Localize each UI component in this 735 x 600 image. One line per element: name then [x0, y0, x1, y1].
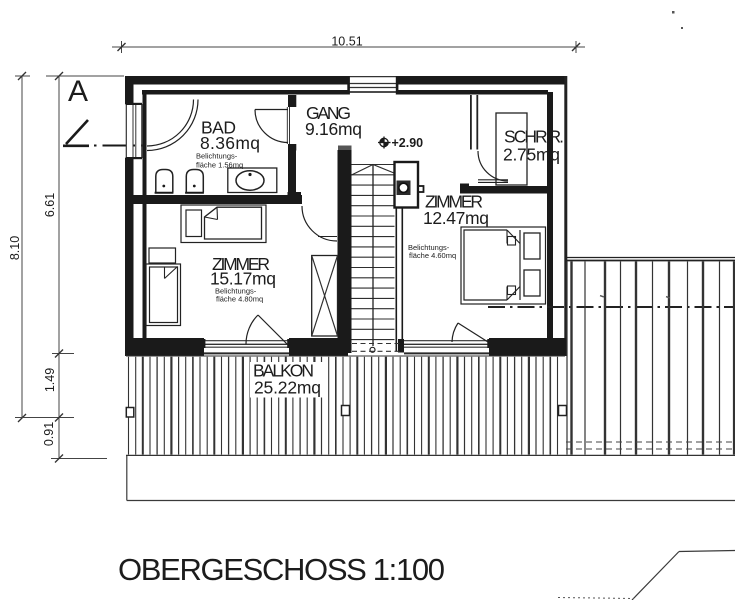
svg-text:2.75mq: 2.75mq	[503, 145, 560, 165]
svg-text:fläche 4.60mq: fläche 4.60mq	[409, 251, 456, 260]
svg-text:10.51: 10.51	[331, 35, 362, 49]
svg-text:0.91: 0.91	[42, 422, 56, 446]
svg-text:25.22mq: 25.22mq	[254, 378, 321, 398]
svg-text:OBERGESCHOSS 1:100: OBERGESCHOSS 1:100	[118, 552, 445, 587]
svg-text:+2.90: +2.90	[392, 136, 424, 150]
svg-text:9.16mq: 9.16mq	[305, 119, 362, 139]
svg-text:6.61: 6.61	[43, 193, 57, 217]
svg-text:A: A	[68, 75, 88, 108]
svg-text:Belichtungs-: Belichtungs-	[196, 152, 238, 161]
svg-text:12.47mq: 12.47mq	[423, 208, 489, 228]
svg-text:8.36mq: 8.36mq	[200, 133, 260, 153]
svg-text:1.49: 1.49	[43, 368, 57, 392]
svg-text:8.10: 8.10	[8, 236, 22, 260]
svg-text:fläche 4.80mq: fläche 4.80mq	[216, 295, 263, 304]
svg-text:SCHR.R.: SCHR.R.	[504, 127, 564, 147]
svg-text:15.17mq: 15.17mq	[210, 268, 276, 288]
